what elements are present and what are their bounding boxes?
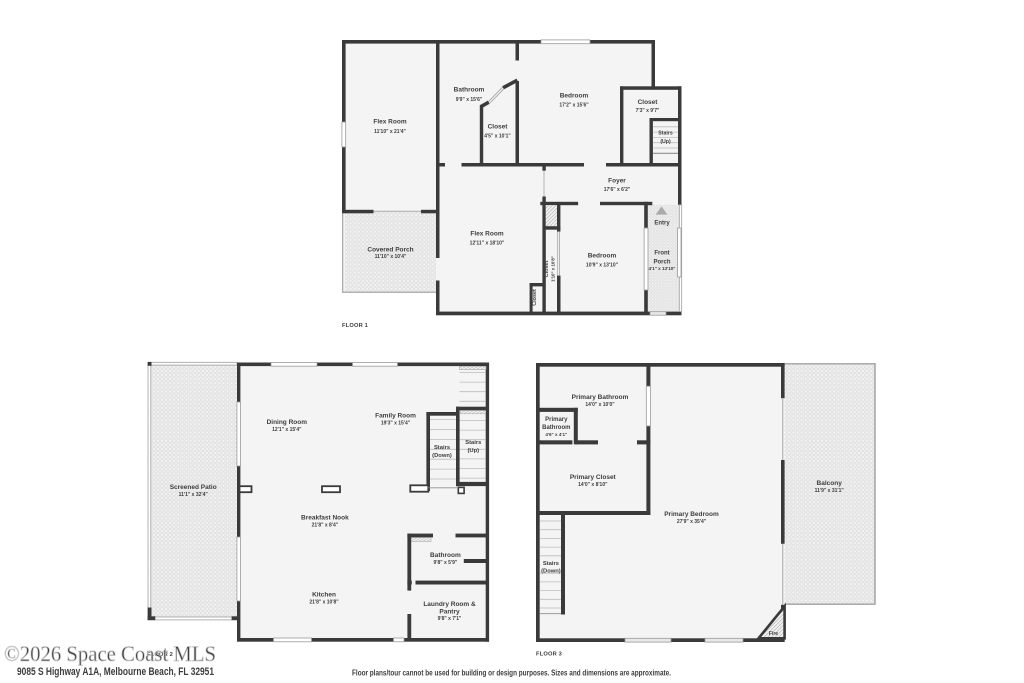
svg-text:11'10" x 21'4": 11'10" x 21'4" bbox=[374, 129, 406, 135]
svg-text:Bathroom: Bathroom bbox=[454, 87, 485, 94]
svg-text:Fire: Fire bbox=[769, 631, 778, 637]
svg-text:Stairs: Stairs bbox=[434, 445, 450, 451]
svg-text:Balcony: Balcony bbox=[817, 480, 843, 487]
svg-text:4'5" x 10'1": 4'5" x 10'1" bbox=[484, 134, 511, 140]
svg-text:4'6" x 4'1": 4'6" x 4'1" bbox=[545, 432, 567, 437]
svg-text:11'9" x 31'1": 11'9" x 31'1" bbox=[815, 488, 845, 494]
svg-text:Covered Porch: Covered Porch bbox=[367, 246, 413, 253]
svg-text:FLOOR 1: FLOOR 1 bbox=[342, 323, 368, 329]
svg-text:9085 S Highway A1A, Melbourne: 9085 S Highway A1A, Melbourne Beach, FL … bbox=[17, 666, 214, 678]
svg-text:Closet: Closet bbox=[638, 99, 659, 106]
svg-text:Flex Room: Flex Room bbox=[470, 231, 503, 238]
svg-text:7'3" x 9'7": 7'3" x 9'7" bbox=[636, 108, 660, 114]
svg-text:Entry: Entry bbox=[654, 221, 670, 227]
svg-text:Bedroom: Bedroom bbox=[560, 93, 589, 100]
svg-text:10'9" x 13'10": 10'9" x 13'10" bbox=[586, 263, 619, 269]
svg-text:Closet: Closet bbox=[532, 289, 538, 306]
svg-text:1'10" x 10'8": 1'10" x 10'8" bbox=[550, 256, 555, 282]
svg-text:12'1" x 15'4": 12'1" x 15'4" bbox=[272, 427, 302, 433]
svg-text:12'11" x 18'10": 12'11" x 18'10" bbox=[470, 241, 505, 247]
svg-text:Family Room: Family Room bbox=[375, 412, 416, 419]
svg-text:Closet: Closet bbox=[488, 124, 509, 131]
svg-text:Foyer: Foyer bbox=[608, 178, 626, 185]
svg-text:4'1" x 13'10": 4'1" x 13'10" bbox=[649, 266, 676, 271]
svg-text:Stairs: Stairs bbox=[543, 561, 559, 567]
svg-text:Primary: Primary bbox=[545, 417, 568, 423]
svg-text:Porch: Porch bbox=[653, 259, 670, 265]
svg-text:(Down): (Down) bbox=[432, 453, 452, 459]
svg-text:Primary Bedroom: Primary Bedroom bbox=[664, 511, 719, 518]
svg-text:Breakfast Nook: Breakfast Nook bbox=[301, 515, 349, 522]
svg-text:Bathroom: Bathroom bbox=[430, 552, 461, 559]
svg-text:Stairs: Stairs bbox=[465, 440, 481, 446]
svg-text:Laundry Room &: Laundry Room & bbox=[423, 601, 476, 608]
svg-text:17'2" x 15'6": 17'2" x 15'6" bbox=[559, 103, 589, 109]
svg-text:Pantry: Pantry bbox=[439, 609, 460, 616]
svg-text:Dining Room: Dining Room bbox=[267, 419, 308, 426]
svg-text:Front: Front bbox=[654, 251, 669, 257]
svg-text:21'8" x 10'8": 21'8" x 10'8" bbox=[309, 600, 339, 606]
svg-text:14'0" x 8'10": 14'0" x 8'10" bbox=[578, 482, 608, 488]
svg-text:Screened Patio: Screened Patio bbox=[170, 484, 217, 491]
svg-text:Primary Bathroom: Primary Bathroom bbox=[572, 394, 629, 401]
svg-text:9'8" x 7'1": 9'8" x 7'1" bbox=[438, 616, 462, 622]
svg-text:Primary Closet: Primary Closet bbox=[570, 474, 617, 481]
svg-text:Flex Room: Flex Room bbox=[373, 119, 406, 126]
svg-text:(Down): (Down) bbox=[541, 569, 561, 575]
svg-text:Bathroom: Bathroom bbox=[542, 425, 570, 431]
svg-text:21'8" x 8'4": 21'8" x 8'4" bbox=[312, 523, 339, 529]
svg-text:9'9" x 15'6": 9'9" x 15'6" bbox=[456, 97, 483, 103]
svg-text:(Up): (Up) bbox=[660, 139, 671, 145]
svg-text:17'6" x 6'2": 17'6" x 6'2" bbox=[604, 187, 631, 193]
svg-text:9'8" x 5'9": 9'8" x 5'9" bbox=[433, 560, 457, 566]
svg-text:11'1" x 32'4": 11'1" x 32'4" bbox=[179, 492, 209, 498]
svg-text:(Up): (Up) bbox=[468, 448, 480, 454]
svg-text:©2026 Space Coast MLS: ©2026 Space Coast MLS bbox=[4, 641, 216, 666]
svg-text:27'9" x 35'4": 27'9" x 35'4" bbox=[677, 519, 707, 525]
svg-text:FLOOR 3: FLOOR 3 bbox=[536, 652, 562, 658]
svg-text:Bedroom: Bedroom bbox=[588, 253, 617, 260]
svg-text:Closet: Closet bbox=[544, 260, 550, 277]
svg-text:14'0" x 10'0": 14'0" x 10'0" bbox=[585, 402, 615, 408]
svg-text:Kitchen: Kitchen bbox=[312, 592, 336, 599]
svg-text:Floor plans/tour cannot be use: Floor plans/tour cannot be used for buil… bbox=[352, 667, 671, 677]
svg-text:Stairs: Stairs bbox=[658, 130, 673, 136]
svg-text:11'10" x 10'4": 11'10" x 10'4" bbox=[375, 254, 407, 260]
svg-text:19'3" x 15'4": 19'3" x 15'4" bbox=[381, 420, 411, 426]
